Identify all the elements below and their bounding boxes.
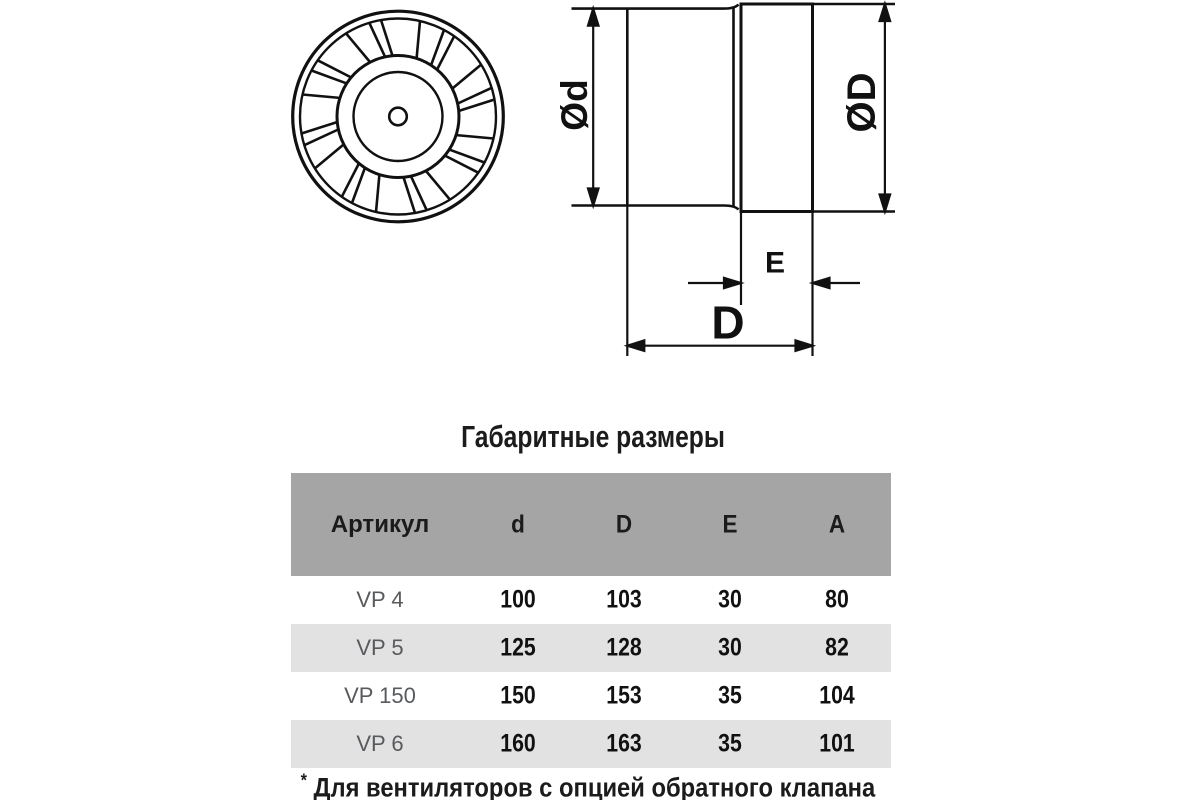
svg-text:Ød: Ød [554, 79, 595, 130]
svg-text:ØD: ØD [840, 73, 884, 133]
svg-text:D: D [711, 297, 744, 349]
svg-text:E: E [765, 247, 785, 280]
